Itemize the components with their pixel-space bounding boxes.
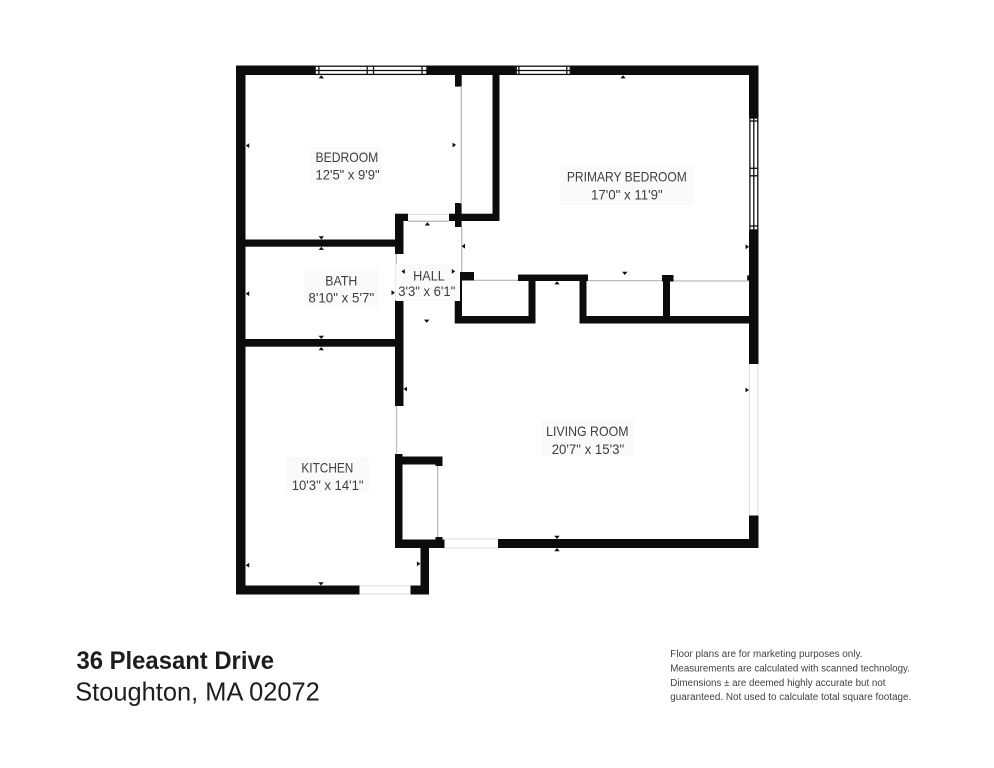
svg-text:PRIMARY BEDROOM: PRIMARY BEDROOM — [567, 170, 687, 185]
svg-text:10'3" x 14'1": 10'3" x 14'1" — [292, 478, 364, 493]
svg-text:KITCHEN: KITCHEN — [301, 460, 353, 475]
svg-text:36 Pleasant Drive: 36 Pleasant Drive — [77, 647, 275, 675]
svg-text:BEDROOM: BEDROOM — [316, 150, 379, 165]
svg-text:17'0" x 11'9": 17'0" x 11'9" — [591, 187, 663, 202]
svg-text:Stoughton, MA 02072: Stoughton, MA 02072 — [75, 679, 320, 707]
svg-text:guaranteed. Not used to calcul: guaranteed. Not used to calculate total … — [670, 692, 911, 703]
svg-text:LIVING ROOM: LIVING ROOM — [546, 424, 628, 439]
svg-text:8'10" x 5'7": 8'10" x 5'7" — [308, 291, 374, 306]
svg-text:HALL: HALL — [413, 268, 445, 283]
svg-text:Floor plans are for marketing: Floor plans are for marketing purposes o… — [670, 649, 862, 660]
svg-text:20'7" x 15'3": 20'7" x 15'3" — [552, 442, 625, 457]
svg-text:Dimensions ± are deemed highly: Dimensions ± are deemed highly accurate … — [670, 678, 885, 689]
svg-text:Measurements are calculated wi: Measurements are calculated with scanned… — [670, 664, 910, 675]
svg-text:12'5" x 9'9": 12'5" x 9'9" — [316, 168, 380, 183]
svg-text:BATH: BATH — [325, 273, 357, 288]
svg-text:3'3" x 6'1": 3'3" x 6'1" — [398, 284, 455, 299]
